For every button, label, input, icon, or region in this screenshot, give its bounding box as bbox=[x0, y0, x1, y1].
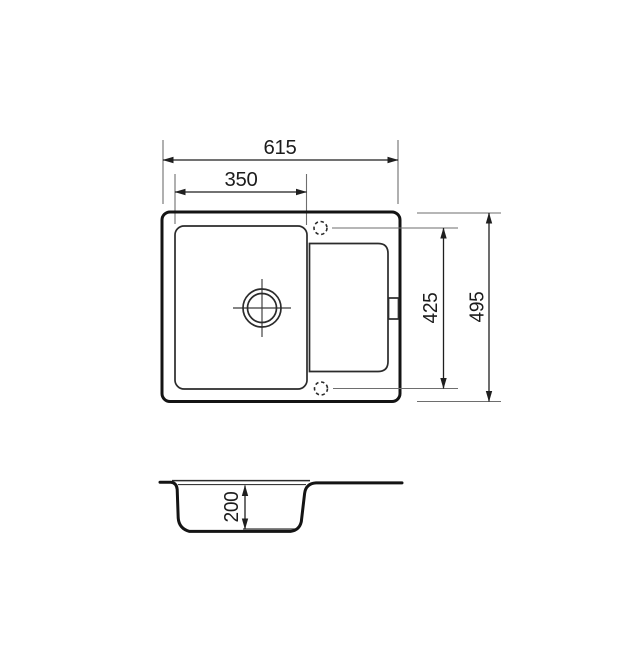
dim-label-overall-width: 615 bbox=[264, 137, 297, 159]
drain-hole bbox=[233, 279, 291, 337]
section-profile bbox=[160, 482, 402, 531]
dim-label-bowl-depth: 200 bbox=[221, 491, 243, 522]
dim-label-inner-length: 425 bbox=[420, 292, 442, 323]
page: { "drawing": { "subject": "inset kitchen… bbox=[0, 0, 625, 670]
dim-label-overall-depth: 495 bbox=[467, 291, 489, 322]
dim-label-bowl-width: 350 bbox=[225, 169, 258, 191]
dim-bowl-depth: 200 bbox=[221, 486, 245, 530]
tap-hole-bottom bbox=[315, 382, 328, 395]
dim-overall-width: 615 bbox=[163, 137, 398, 204]
section-view: 200 bbox=[160, 481, 402, 532]
dim-inner-length: 425 bbox=[332, 228, 458, 389]
sink-technical-drawing: 615 350 425 bbox=[0, 0, 625, 670]
dim-bowl-width: 350 bbox=[175, 169, 307, 225]
overflow-marker bbox=[389, 298, 399, 319]
drainboard-outline bbox=[310, 244, 389, 372]
plan-view: 615 350 425 bbox=[162, 137, 501, 402]
tap-hole-top bbox=[314, 222, 327, 235]
